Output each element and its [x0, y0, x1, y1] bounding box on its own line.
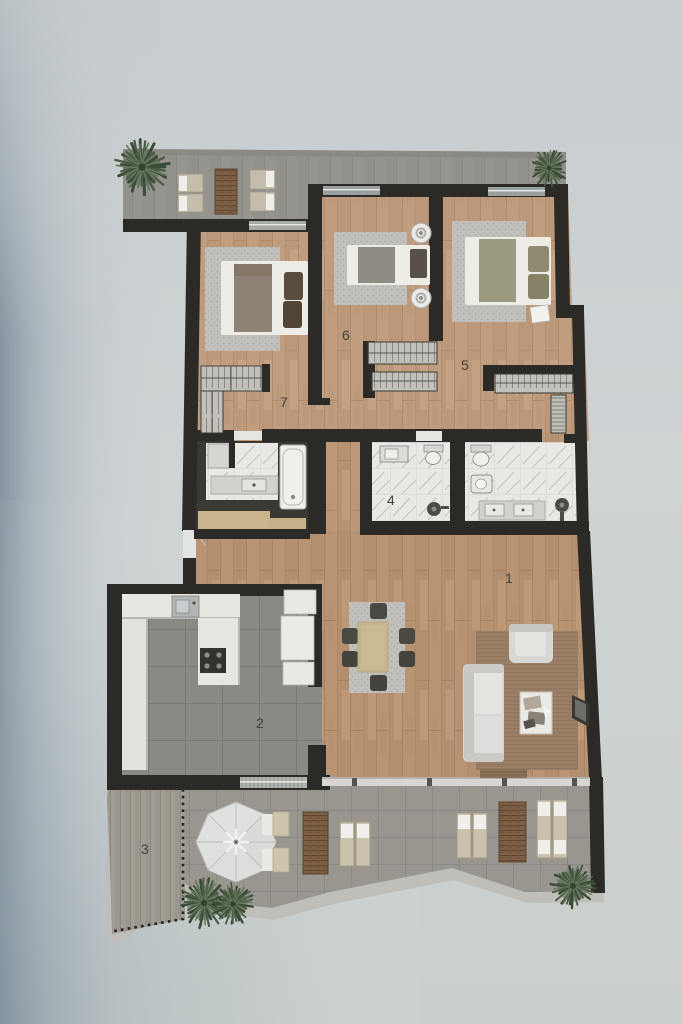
- svg-text:2: 2: [256, 715, 264, 731]
- svg-text:7: 7: [280, 394, 288, 410]
- svg-text:6: 6: [342, 327, 350, 343]
- svg-text:5: 5: [461, 357, 469, 373]
- svg-text:1: 1: [505, 570, 513, 586]
- svg-text:4: 4: [387, 492, 395, 508]
- svg-text:3: 3: [141, 841, 149, 857]
